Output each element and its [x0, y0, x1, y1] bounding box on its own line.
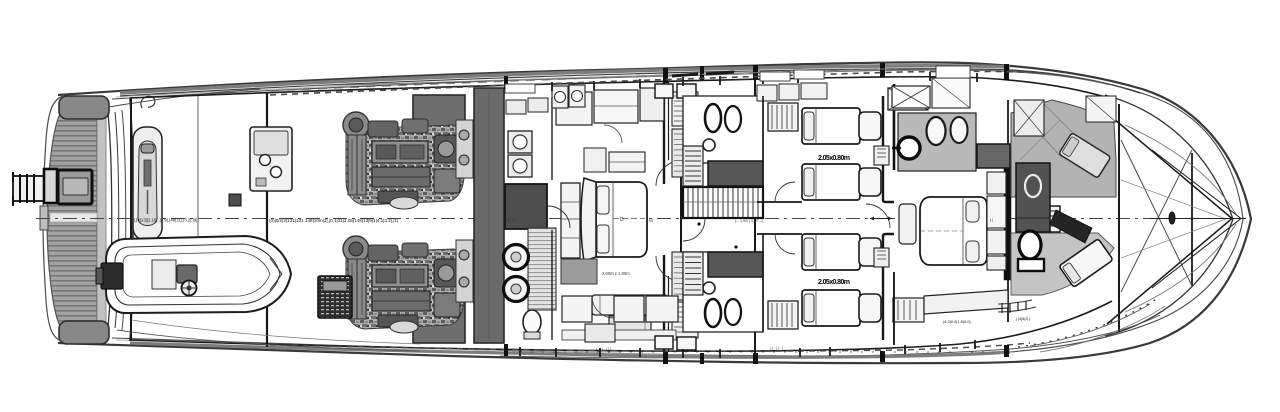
svg-text:|,|.|7|: |,|.|7|	[506, 217, 515, 222]
svg-text:.|4.2|0.9|1.8|5.0|..: .|4.2|0.9|1.8|5.0|..	[942, 319, 973, 324]
svg-text:|.|4|8|2|.|: |.|4|8|2|.|	[1016, 317, 1030, 321]
svg-text:|-- 1.93 | 1.07 --|: |-- 1.93 | 1.07 --|	[735, 218, 763, 223]
svg-text:D: D	[620, 217, 624, 223]
svg-text:2.05x0.80m: 2.05x0.80m	[818, 279, 850, 286]
svg-text:2.05x0.80m: 2.05x0.80m	[818, 155, 850, 162]
svg-text:2.00m x 1.80m: 2.00m x 1.80m	[602, 271, 630, 276]
svg-text:1.05: 1.05	[646, 219, 653, 223]
svg-text:| . | | . | | |: | . | | . | | |	[596, 347, 611, 351]
svg-text:| | . | | . |: | | . | | . |	[770, 346, 783, 350]
svg-text:|.|: |.|	[990, 217, 993, 222]
svg-text:|.|4|13||2.10|..|1.9|,|48|.|1|: |.|4|13||2.10|..|1.9|,|48|.|1|,|3.2|.|9|	[134, 218, 197, 223]
svg-text:(0)|0m|2|131|131.148|10m|1|,|0: (0)|0m|2|131|131.148|10m|1|,|0.1|31|1.05…	[269, 218, 398, 223]
